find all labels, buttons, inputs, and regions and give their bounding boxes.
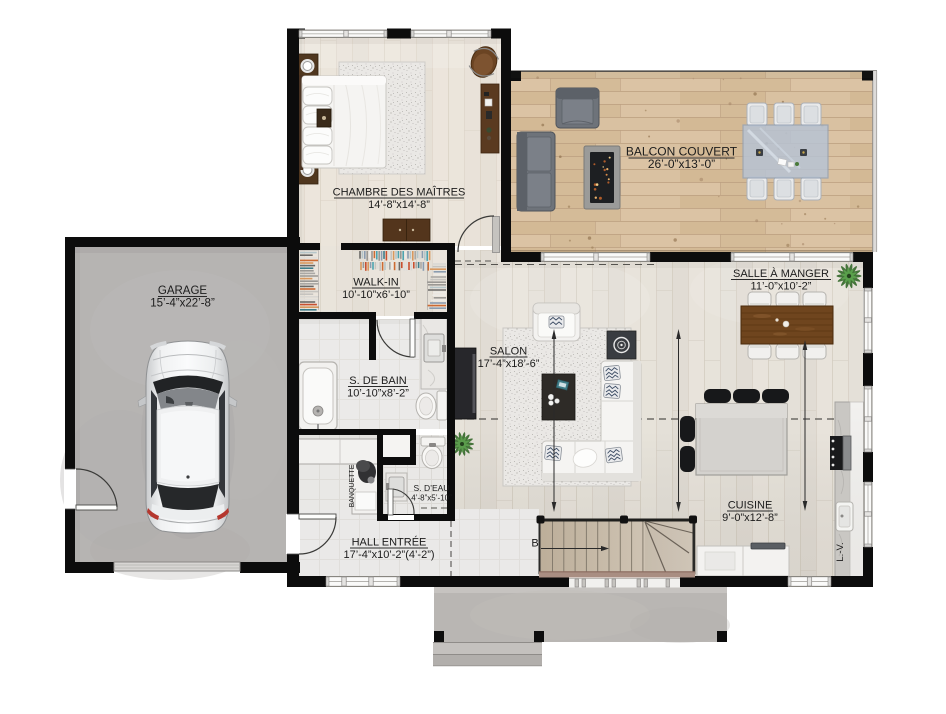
svg-text:GARAGE: GARAGE — [158, 285, 208, 297]
svg-text:10’-10”x6’-10”: 10’-10”x6’-10” — [342, 289, 410, 301]
svg-text:26’-0”x13’-0”: 26’-0”x13’-0” — [648, 157, 715, 171]
svg-text:SALON: SALON — [490, 346, 527, 358]
svg-text:HALL ENTRÉE: HALL ENTRÉE — [352, 536, 427, 549]
svg-text:B: B — [531, 538, 538, 550]
svg-text:11’-0”x10’-2”: 11’-0”x10’-2” — [751, 281, 812, 293]
svg-text:BANQUETTE: BANQUETTE — [349, 464, 356, 507]
svg-text:15’-4”x22’-8”: 15’-4”x22’-8” — [150, 298, 215, 310]
svg-text:17’-4”x10’-2”(4’-2”): 17’-4”x10’-2”(4’-2”) — [343, 549, 434, 561]
svg-text:10’-10”x8’-2”: 10’-10”x8’-2” — [347, 388, 409, 400]
svg-text:L.-V.: L.-V. — [835, 542, 846, 561]
svg-text:4’-8”x5’-10”: 4’-8”x5’-10” — [411, 494, 452, 503]
svg-text:S. DE BAIN: S. DE BAIN — [349, 375, 407, 387]
svg-text:WALK-IN: WALK-IN — [353, 277, 398, 289]
svg-text:CHAMBRE DES MAÎTRES: CHAMBRE DES MAÎTRES — [333, 186, 466, 199]
svg-text:14’-8”x14’-8”: 14’-8”x14’-8” — [368, 199, 430, 211]
svg-text:S. D’EAU: S. D’EAU — [414, 483, 450, 493]
svg-text:CUISINE: CUISINE — [728, 500, 773, 512]
svg-text:17’-4”x18’-6”: 17’-4”x18’-6” — [478, 358, 540, 370]
svg-text:9’-0”x12’-8”: 9’-0”x12’-8” — [722, 512, 778, 524]
svg-text:SALLE À MANGER: SALLE À MANGER — [733, 267, 829, 280]
